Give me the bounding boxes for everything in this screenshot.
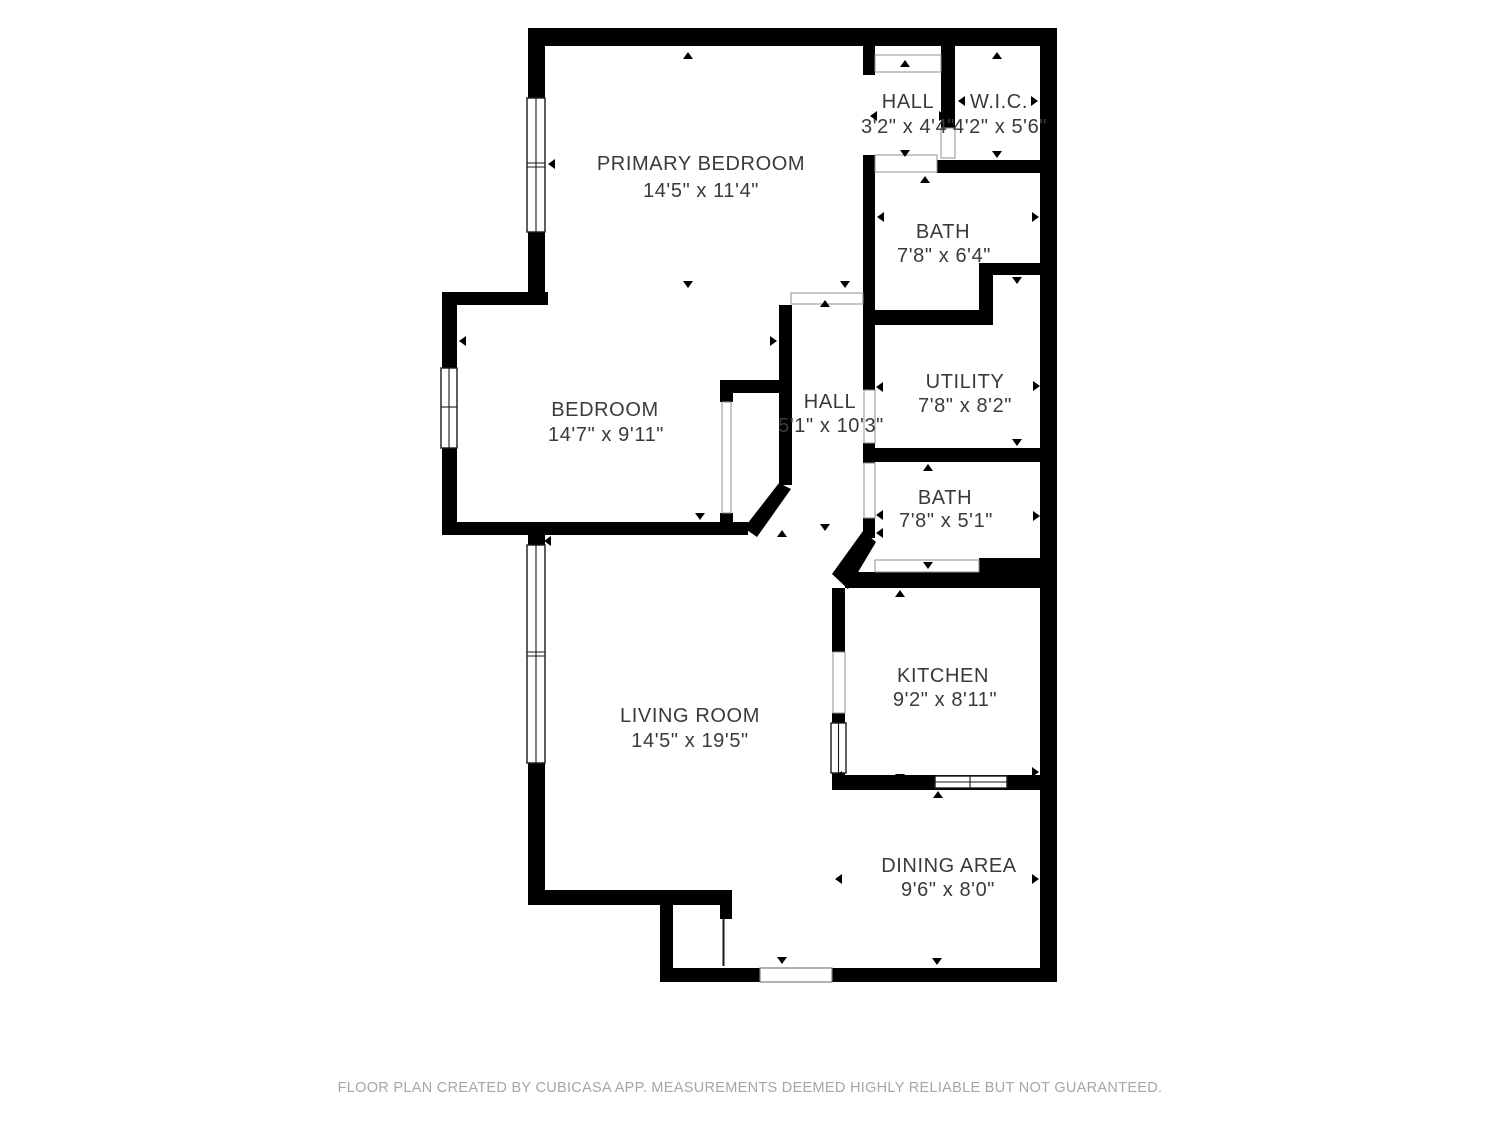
room-dims-living-room: 14'5" x 19'5" [631,730,749,752]
room-dims-hall-mid: 5'1" x 10'3" [778,415,884,437]
doorway-opening [833,652,845,713]
window-living-room [527,545,545,763]
room-label-bedroom: BEDROOM [551,399,659,421]
room-dims-hall-top: 3'2" x 4'4" [861,116,955,138]
doorway-opening [875,155,937,172]
room-label-wic: W.I.C. [970,91,1028,113]
floor-plan-page: PRIMARY BEDROOM 14'5" x 11'4" HALL 3'2" … [0,0,1500,1125]
room-label-hall-mid: HALL [804,391,856,413]
window-bedroom [441,368,457,448]
room-label-bath-upper: BATH [916,221,970,243]
room-label-bath-lower: BATH [918,487,972,509]
room-dims-bath-upper: 7'8" x 6'4" [897,245,991,267]
doorway-opening [864,463,875,518]
room-dims-utility: 7'8" x 8'2" [918,395,1012,417]
entry-door-opening [760,968,832,982]
room-label-living-room: LIVING ROOM [620,705,760,727]
window-kitchen-dining [935,776,1007,788]
doorway-opening [875,55,941,72]
floor-plan-drawing: PRIMARY BEDROOM 14'5" x 11'4" HALL 3'2" … [0,0,1500,1125]
closet-front [722,402,731,513]
room-dims-primary-bedroom: 14'5" x 11'4" [643,180,759,202]
room-dims-kitchen: 9'2" x 8'11" [893,689,997,711]
doorway-opening [791,293,863,304]
window-primary-bedroom [527,98,545,232]
room-dims-dining-area: 9'6" x 8'0" [901,879,995,901]
footer-disclaimer: FLOOR PLAN CREATED BY CUBICASA APP. MEAS… [338,1080,1163,1096]
room-label-hall-top: HALL [882,91,934,113]
room-label-utility: UTILITY [926,371,1005,393]
room-label-dining-area: DINING AREA [881,855,1017,877]
room-dims-wic: 4'2" x 5'6" [953,116,1047,138]
room-dims-bath-lower: 7'8" x 5'1" [899,510,993,532]
room-dims-bedroom: 14'7" x 9'11" [548,424,664,446]
room-label-primary-bedroom: PRIMARY BEDROOM [597,153,805,175]
room-label-kitchen: KITCHEN [897,665,989,687]
window-kitchen-side [831,723,846,773]
